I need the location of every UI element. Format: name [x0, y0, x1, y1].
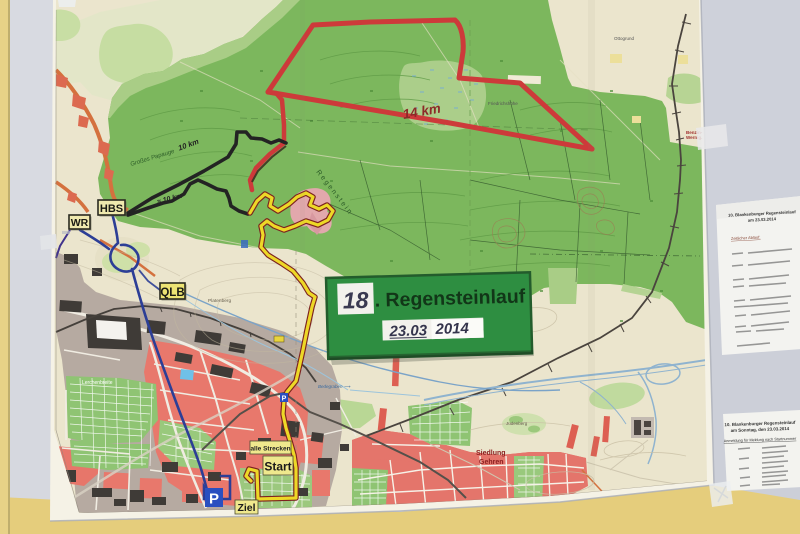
svg-text:18: 18 [342, 287, 369, 314]
svg-text:Platenberg: Platenberg [208, 298, 232, 304]
svg-text:QLB: QLB [160, 287, 184, 299]
svg-text:Bedegraben ⟶: Bedegraben ⟶ [318, 384, 351, 389]
svg-text:alle Strecken: alle Strecken [250, 446, 290, 453]
svg-text:. Regensteinlauf: . Regensteinlauf [374, 285, 526, 311]
svg-text:Siedlung: Siedlung [476, 450, 506, 457]
svg-text:Lerchenbreite: Lerchenbreite [82, 380, 113, 386]
svg-text:Ziel: Ziel [237, 502, 255, 514]
svg-text:Ottogrund: Ottogrund [614, 36, 635, 41]
svg-text:P: P [209, 491, 219, 508]
svg-text:Jüdenberg: Jüdenberg [506, 421, 528, 426]
svg-text:2014: 2014 [434, 320, 469, 338]
svg-text:Friedrichshöhe: Friedrichshöhe [488, 101, 518, 106]
svg-text:P: P [282, 396, 287, 403]
svg-text:Gehren: Gehren [479, 459, 504, 466]
svg-text:Start: Start [264, 460, 291, 474]
svg-text:HBS: HBS [100, 203, 123, 215]
svg-text:WR: WR [71, 217, 89, 229]
